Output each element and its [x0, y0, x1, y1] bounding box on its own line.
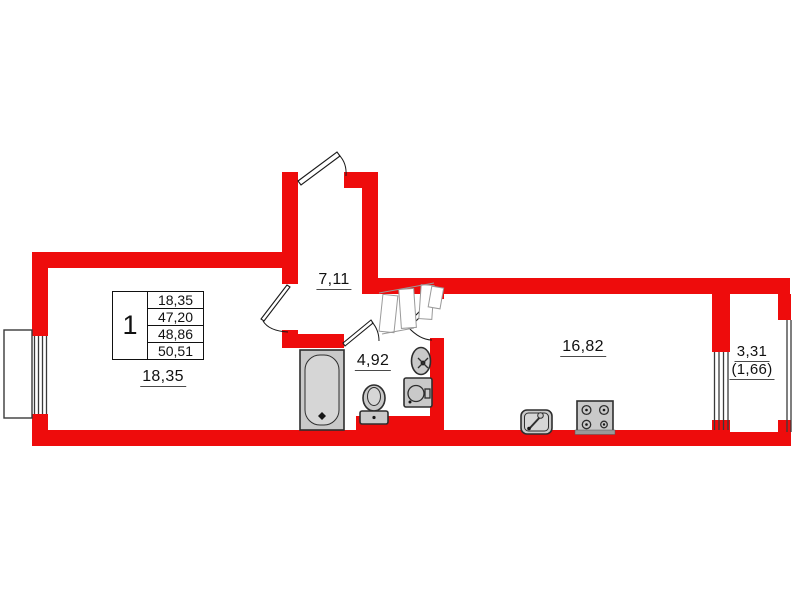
bathroom-door	[343, 320, 379, 346]
area-value-row: 47,20	[148, 309, 204, 326]
bathroom-sink	[412, 348, 431, 375]
wall-balcony-divider	[712, 294, 730, 352]
wall-hall-right	[362, 172, 378, 294]
stove	[575, 401, 615, 435]
living-room-area-label: 18,35	[140, 368, 186, 386]
bathroom-area-label: 4,92	[355, 352, 391, 370]
floor-plan-canvas: 1 18,35 47,20 48,86 50,51 18,35 7,11 4,9…	[0, 0, 800, 600]
entry-door	[298, 152, 346, 185]
apartment-number: 1	[113, 292, 148, 360]
living-room-window	[4, 330, 47, 418]
living-room-door	[261, 285, 290, 332]
hallway-area-label: 7,11	[316, 271, 351, 289]
kitchen-area-label: 16,82	[560, 338, 606, 356]
area-value-row: 18,35	[148, 292, 204, 309]
wall-balcony-right-stub	[778, 294, 791, 320]
area-value-row: 48,86	[148, 326, 204, 343]
wall-balcony-right-base	[778, 420, 791, 446]
balcony-window	[715, 352, 729, 430]
balcony-side-glazing	[787, 320, 791, 432]
wall-bathroom-top	[282, 334, 344, 348]
wall-hall-left	[282, 172, 298, 284]
kitchen-sink	[521, 410, 552, 434]
washing-machine	[404, 378, 432, 407]
bathtub	[300, 350, 344, 430]
toilet	[360, 385, 388, 424]
apartment-info-table: 1 18,35 47,20 48,86 50,51	[112, 291, 204, 360]
wall-top-living	[32, 252, 296, 268]
balcony-area-label: 3,31 (1,66)	[730, 343, 775, 379]
area-value-row: 50,51	[148, 343, 204, 360]
